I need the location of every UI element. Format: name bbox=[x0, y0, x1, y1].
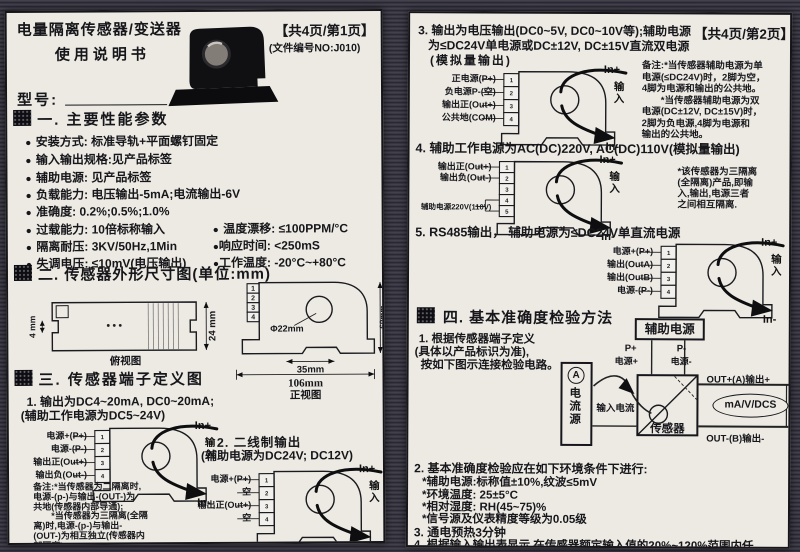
dim-35mm: 35mm bbox=[297, 364, 325, 375]
product-photo bbox=[163, 18, 285, 117]
terminal-label: 电源+(P+) bbox=[175, 474, 251, 485]
doc-title-line1: 电量隔离传感器/变送器 bbox=[17, 18, 182, 40]
note-line: 电源(DC±12V, DC±15V)时， bbox=[642, 106, 766, 118]
terminal-label: 输出正(Out+) bbox=[415, 161, 491, 172]
out-a-label: OUT+(A)输出+ bbox=[707, 371, 770, 385]
terminal-label: 辅助电源220V(110V) bbox=[411, 201, 491, 212]
param-text: 安装方式: 标准导轨+平面螺钉固定 bbox=[36, 134, 218, 149]
note-line: 4脚为电源和输出的公共地。 bbox=[642, 83, 766, 95]
dim-24mm: 24 mm bbox=[207, 311, 218, 341]
bullet-icon: ● bbox=[26, 226, 32, 237]
in-plus-label: In+ bbox=[599, 154, 615, 166]
in-plus-label: In+ bbox=[604, 64, 620, 76]
terminal-label: 空 bbox=[175, 487, 251, 498]
terminal-label: 电源+(P+) bbox=[577, 246, 653, 257]
param-text: 隔离耐压: 3KV/50Hz,1Min bbox=[36, 239, 177, 254]
terminal-label: 正电源(P+) bbox=[420, 73, 496, 84]
item2-line2: (辅助电源为DC24V; DC12V) bbox=[201, 446, 353, 464]
in-plus-label: In+ bbox=[359, 463, 375, 475]
input-label: 输入 bbox=[369, 480, 382, 504]
check-step4-line1: 4. 根据输入输出表显示,在传感器额定输入值的20%~120%范围内任 bbox=[414, 536, 754, 549]
input-current-label: 输入电流 bbox=[596, 400, 634, 414]
dim-4mm: 4 mm bbox=[28, 315, 37, 338]
section-marker-icon bbox=[14, 370, 32, 386]
note-line: (全隔离)产品,即输 bbox=[677, 177, 757, 188]
note-line: *当传感器辅助电源为双 bbox=[642, 95, 766, 107]
bullet-icon: ● bbox=[25, 138, 31, 149]
model-label: 型号: bbox=[17, 89, 58, 110]
note-line: 电源(≤DC24V)时，2脚为空， bbox=[642, 72, 766, 84]
input-label: 输入 bbox=[614, 81, 627, 105]
check-step1-line: 按如下图示连接检验电路。 bbox=[421, 356, 559, 373]
meter-oval: mA/V/DCS bbox=[712, 393, 788, 417]
terminal-label: 电源-(P-) bbox=[11, 444, 87, 455]
param-text: 辅助电源: 见产品标签 bbox=[36, 170, 151, 185]
p-plus-cn-label: 电源+ bbox=[615, 354, 638, 367]
terminal-label: 电源+(P+) bbox=[11, 431, 87, 442]
terminal-label: 输出负(Out-) bbox=[415, 172, 491, 183]
current-source-label: 电流源 bbox=[569, 388, 583, 427]
input-label: 输入 bbox=[609, 171, 622, 195]
terminal-label: 电源-(P-) bbox=[577, 285, 653, 296]
pin-number: 1 bbox=[251, 286, 255, 293]
dimension-front-view: 1 2 3 4 Φ22mm 60mm 35mm 106mm 正视图 bbox=[234, 277, 385, 400]
manual-page-2: 3. 输出为电压输出(DC0~5V, DC0~10V等);辅助电源 【共4页/第… bbox=[406, 11, 792, 549]
note-line: *该传感器为三隔离 bbox=[677, 166, 757, 177]
bullet-icon: ● bbox=[26, 208, 32, 219]
terminal-label: 输出负(Out-) bbox=[11, 470, 87, 481]
wiring-diagram-2: 1 2 3 4 电源+(P+) 空 输出正(Out+) 空 In+ 输入 In- bbox=[175, 463, 385, 545]
bullet-icon: ● bbox=[25, 174, 31, 185]
terminal-label: 输出正(Out+) bbox=[420, 99, 496, 110]
pin-number: 2 bbox=[251, 295, 255, 302]
model-underline bbox=[65, 86, 167, 106]
hatch-lines bbox=[148, 303, 178, 349]
param-text: 响应时间: <250mS bbox=[219, 238, 320, 253]
pin-number: 4 bbox=[251, 314, 255, 321]
manual-page-1: 电量隔离传感器/变送器 使用说明书 【共4页/第1页】 (文件编号NO:J010… bbox=[5, 9, 386, 545]
dim-diameter: Φ22mm bbox=[270, 323, 303, 333]
check-circuit: 辅助电源 P+ 电源+ P- 电源- A 电流源 输入电流 传感器 OUT+(A… bbox=[556, 314, 792, 457]
dim-60mm: 60mm bbox=[378, 305, 385, 328]
section-marker-icon bbox=[13, 110, 31, 126]
page-indicator: 【共4页/第1页】 bbox=[275, 19, 375, 40]
note-line: 2脚为负电源,4脚为电源和 bbox=[642, 118, 766, 130]
param-text: 过载能力: 10倍标称输入 bbox=[36, 222, 165, 237]
param-text: 负载能力: 电压输出-5mA;电流输出-6V bbox=[36, 187, 240, 202]
top-view-caption: 俯视图 bbox=[110, 354, 142, 367]
bullet-icon: ● bbox=[213, 225, 219, 236]
sensor-label: 传感器 bbox=[640, 420, 694, 436]
terminal-label: 空 bbox=[175, 513, 251, 524]
input-label: 输入 bbox=[771, 254, 784, 278]
in-plus-label: In+ bbox=[195, 420, 211, 432]
terminal-label: 输出正(Out+) bbox=[175, 500, 251, 511]
aux-power-box: 辅助电源 bbox=[635, 318, 705, 340]
doc-title-line2: 使用说明书 bbox=[55, 43, 150, 64]
product-base bbox=[168, 86, 279, 106]
section-3-title: 三. 传感器端子定义图 bbox=[38, 368, 203, 390]
section-marker-icon bbox=[417, 307, 435, 323]
dim-106mm: 106mm bbox=[288, 377, 323, 389]
terminal-label: 公共地(COM) bbox=[420, 112, 496, 123]
in-minus-label: In- bbox=[361, 540, 375, 545]
pin-number: 3 bbox=[251, 305, 255, 312]
note-1: 备注:*当传感器为二隔离时, 电源-(p-)与输出-(OUT-)为 共地(传感器… bbox=[33, 482, 148, 545]
note-4: *该传感器为三隔离 (全隔离)产品,即输 入,输出,电源三者 之间相互隔离. bbox=[677, 166, 757, 210]
page-indicator: 【共4页/第2页】 bbox=[694, 22, 792, 42]
param-text: 准确度: 0.2%;0.5%;1.0% bbox=[36, 204, 169, 219]
bullet-icon: ● bbox=[26, 243, 32, 254]
bullet-icon: ● bbox=[25, 156, 31, 167]
terminal-label: 输出(OutA) bbox=[577, 259, 653, 270]
out-b-label: OUT-(B)输出- bbox=[706, 430, 764, 444]
p-minus-cn-label: 电源- bbox=[671, 354, 692, 367]
terminal-label: 输出正(Out+) bbox=[11, 457, 87, 468]
check-step4-line2: 意给定输入值， 记录对应的输出值。 bbox=[426, 548, 613, 549]
note-3: 备注:*当传感器辅助电源为单 电源(≤DC24V)时，2脚为空， 4脚为电源和输… bbox=[642, 60, 766, 141]
scanned-manual: 电量隔离传感器/变送器 使用说明书 【共4页/第1页】 (文件编号NO:J010… bbox=[0, 0, 800, 552]
section-1-title: 一. 主要性能参数 bbox=[37, 108, 168, 130]
front-view-caption: 正视图 bbox=[290, 388, 322, 399]
note-line: 入,输出,电源三者 bbox=[677, 188, 757, 199]
param-text: 输入输出规格:见产品标签 bbox=[36, 152, 172, 167]
terminal-label: 输出(OutB) bbox=[577, 272, 653, 283]
p-plus-label: P+ bbox=[625, 343, 637, 354]
in-plus-label: In+ bbox=[761, 237, 777, 249]
doc-number: (文件编号NO:J010) bbox=[269, 40, 361, 55]
ammeter-icon: A bbox=[568, 367, 585, 384]
terminal-label: 负电源P-(空) bbox=[420, 86, 496, 97]
section-marker-icon bbox=[14, 265, 32, 281]
note-line: 之间相互隔离. bbox=[677, 199, 757, 210]
param-text: 温度漂移: ≤100PPM/°C bbox=[223, 221, 348, 236]
p-minus-label: P- bbox=[677, 343, 687, 354]
dimension-top-view: 4 mm 24 mm 俯视图 bbox=[28, 294, 218, 369]
note-line: 备注:*当传感器辅助电源为单 bbox=[642, 60, 766, 72]
bullet-icon: ● bbox=[26, 191, 32, 202]
note-line: 部隔离) bbox=[33, 541, 148, 545]
